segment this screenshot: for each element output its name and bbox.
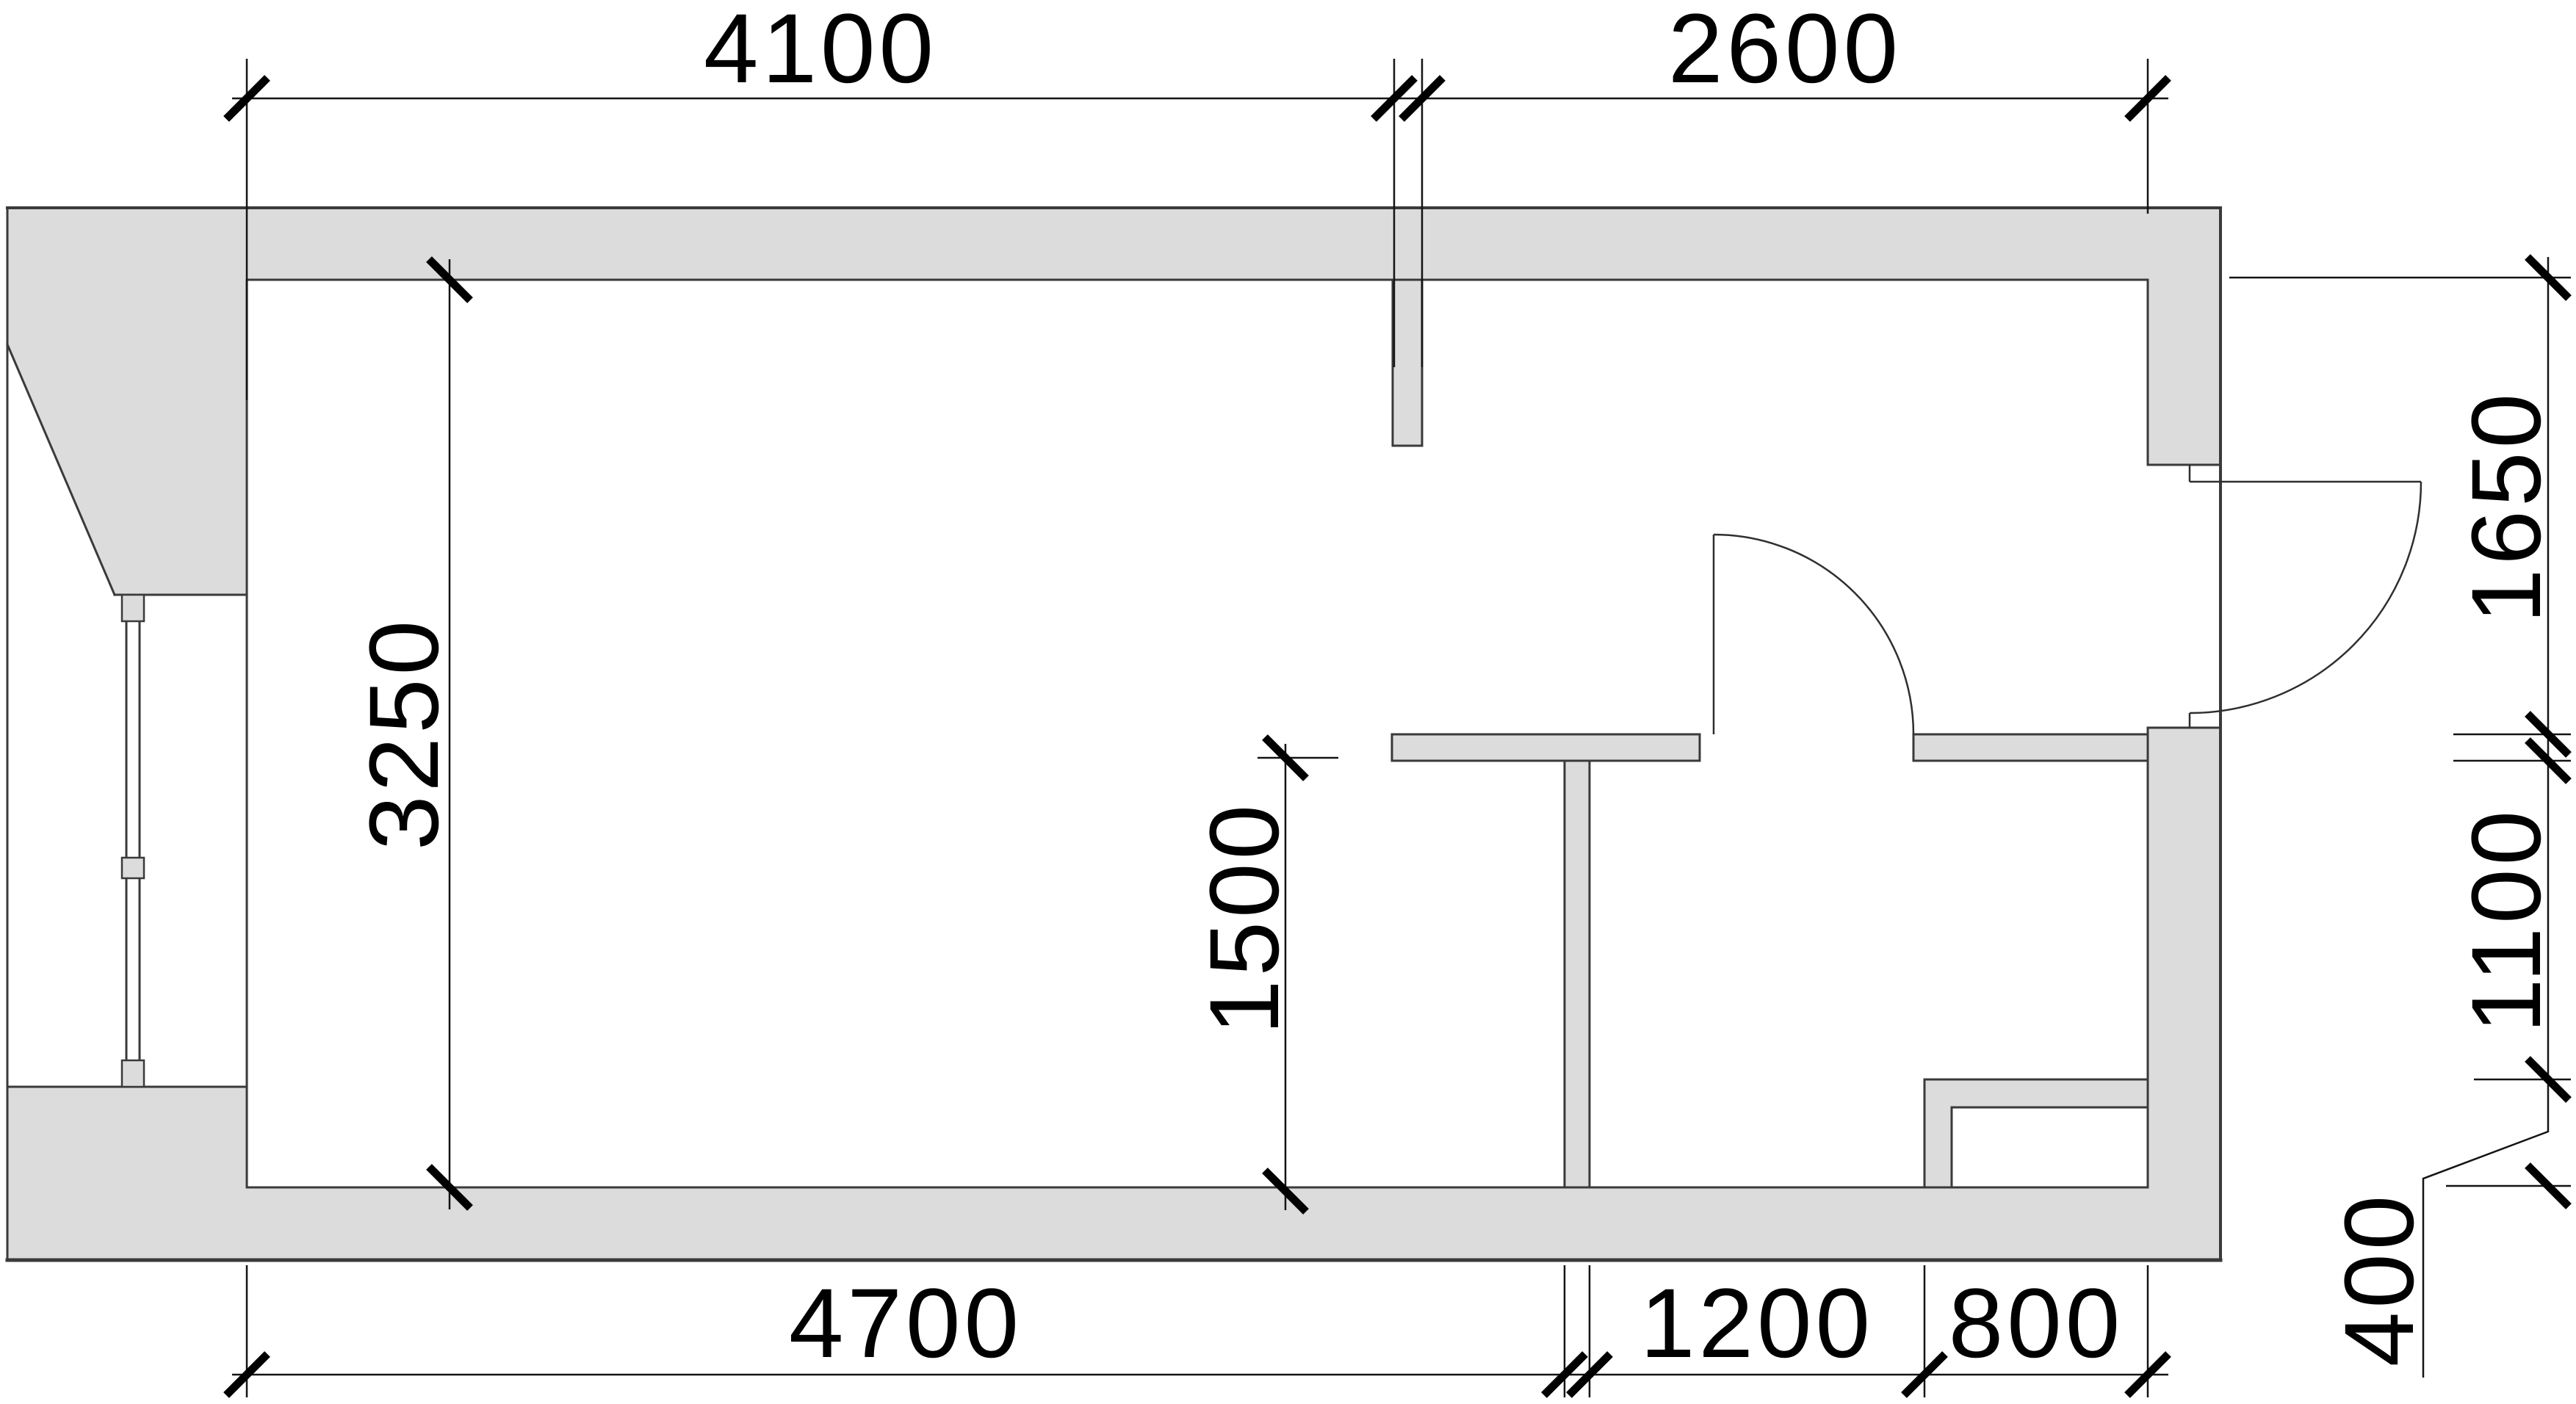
balcony-window bbox=[122, 595, 144, 1087]
floor-plan-sheet: 4100 2600 4700 1200 800 3250 1500 1650 1… bbox=[0, 0, 2576, 1404]
dim-label-1100: 1100 bbox=[2452, 807, 2561, 1033]
window-sill-top bbox=[122, 595, 144, 621]
entry-door-swing-arc bbox=[2190, 482, 2421, 713]
hall-wall-right-segment bbox=[1913, 734, 2148, 761]
right-wall-lower bbox=[2148, 728, 2220, 1260]
floor-plan-drawing: 4100 2600 4700 1200 800 3250 1500 1650 1… bbox=[0, 0, 2576, 1404]
dim-label-2600: 2600 bbox=[1668, 0, 1902, 104]
dim-label-1200: 1200 bbox=[1640, 1269, 1874, 1378]
balcony-lower-block bbox=[7, 1087, 247, 1187]
dim-label-3250: 3250 bbox=[350, 617, 459, 850]
bathroom-door bbox=[1714, 535, 1913, 734]
hall-wall-left-segment bbox=[1392, 734, 1700, 761]
top-wall-and-left-wedge bbox=[7, 208, 2220, 595]
bathroom-west-wall bbox=[1565, 761, 1590, 1187]
wall-fills bbox=[7, 208, 2220, 1260]
dim-label-800: 800 bbox=[1949, 1269, 2124, 1378]
closet-west-wall bbox=[1924, 1079, 1952, 1187]
dim-label-1650: 1650 bbox=[2452, 390, 2561, 623]
dimension-bottom-chain bbox=[226, 1265, 2168, 1397]
window-sill-bottom bbox=[122, 1060, 144, 1087]
dim-label-4100: 4100 bbox=[704, 0, 937, 104]
closet-top-wall bbox=[1924, 1079, 2148, 1107]
right-wall-upper bbox=[2148, 208, 2220, 465]
bathroom-door-swing-arc bbox=[1714, 535, 1913, 734]
doors bbox=[1714, 465, 2421, 734]
window-sill-middle bbox=[122, 858, 144, 878]
bottom-wall bbox=[7, 1187, 2220, 1260]
dim-label-1500: 1500 bbox=[1190, 801, 1299, 1035]
entry-door bbox=[2190, 465, 2421, 728]
dim-label-400: 400 bbox=[2325, 1192, 2434, 1367]
dim-label-4700: 4700 bbox=[789, 1269, 1022, 1378]
kitchen-stub-wall bbox=[1393, 280, 1422, 446]
wall-outlines bbox=[7, 208, 2220, 1260]
